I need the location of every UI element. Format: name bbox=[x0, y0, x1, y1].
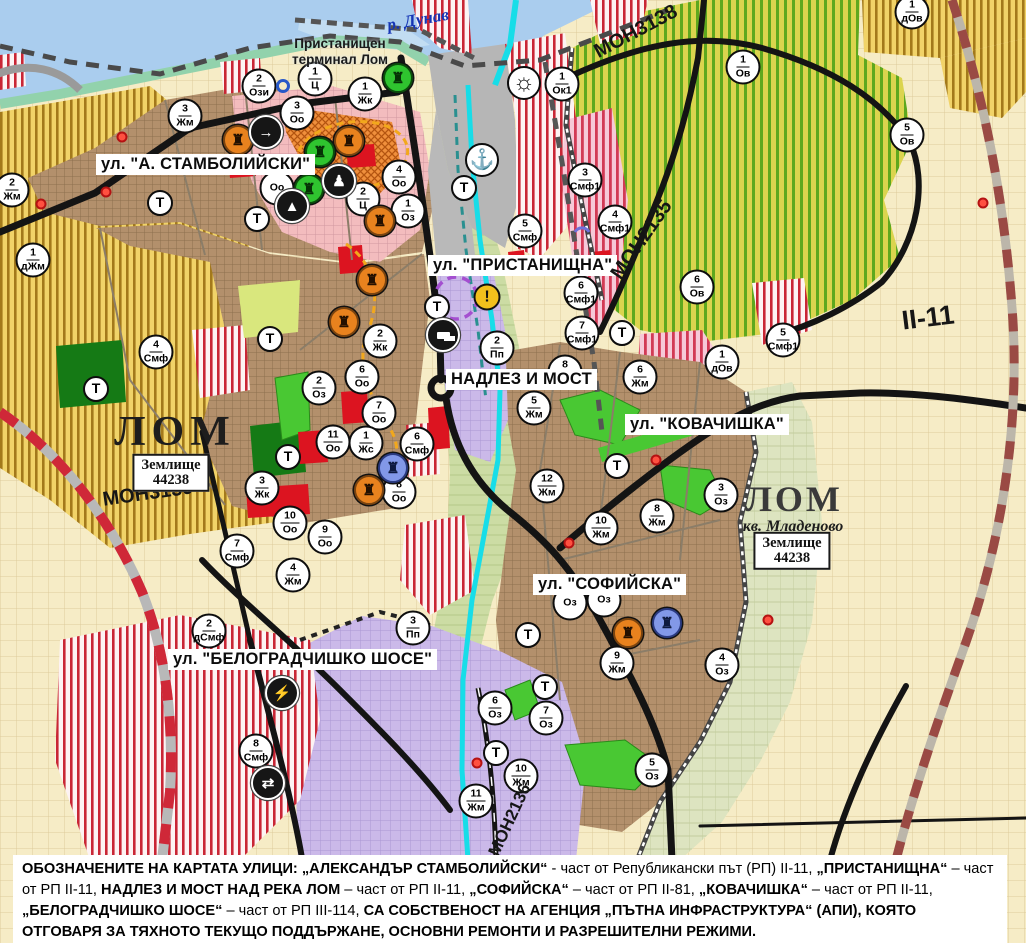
legend-note-text: ОБОЗНАЧЕНИТЕ НА КАРТАТА УЛИЦИ: „АЛЕКСАНД… bbox=[22, 859, 998, 942]
zoning-map[interactable]: 2Жм1дЖм3Жм2Ози1Ц1Жк3ОоОо4Оо2Ц1Оз1Ок13Смф… bbox=[0, 0, 1026, 943]
map-labels-layer: р. Дунав Пристанищен терминал Лом ул. "А… bbox=[0, 0, 1026, 943]
street-label-stamboliyski: ул. "А. СТАМБОЛИЙСКИ" bbox=[96, 154, 315, 175]
road-label-mon2135: МОН2135 bbox=[606, 196, 677, 284]
zemlishte-east-box: Землище44238 bbox=[753, 532, 830, 570]
map-legend-note: ОБОЗНАЧЕНИТЕ НА КАРТАТА УЛИЦИ: „АЛЕКСАНД… bbox=[13, 855, 1007, 943]
river-label: р. Дунав bbox=[386, 5, 451, 35]
area-label-lom-west: ЛОМ bbox=[114, 408, 236, 456]
road-label-mon3138: МОН3138 bbox=[590, 0, 681, 63]
street-label-belogradchishko-shose: ул. "БЕЛОГРАДЧИШКО ШОСЕ" bbox=[168, 649, 437, 670]
road-label-ii-11: II-11 bbox=[900, 299, 956, 336]
port-terminal-label: Пристанищен терминал Лом bbox=[292, 36, 388, 68]
street-label-sofiyska: ул. "СОФИЙСКА" bbox=[533, 574, 686, 595]
area-label-lom-mladenovo: ЛОМ bbox=[745, 478, 843, 520]
street-label-pristanishtna: ул. "ПРИСТАНИЩНА" bbox=[428, 255, 617, 276]
street-label-nadlez-i-most: НАДЛЕЗ И МОСТ bbox=[446, 369, 597, 390]
zemlishte-west-box: Землище44238 bbox=[132, 454, 209, 492]
street-label-kovachishka: ул. "КОВАЧИШКА" bbox=[625, 414, 789, 435]
road-label-mon2136: МОН2136 bbox=[485, 781, 536, 860]
